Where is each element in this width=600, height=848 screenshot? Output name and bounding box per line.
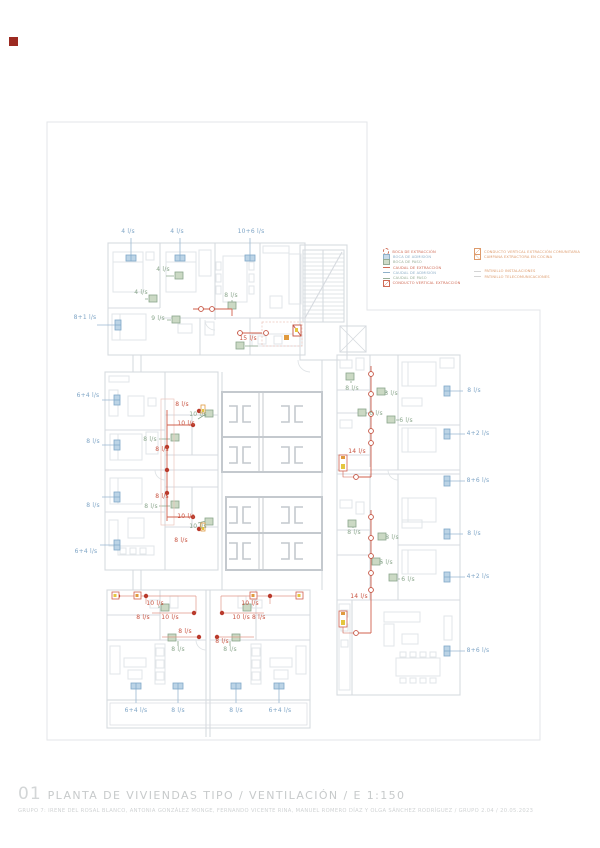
sheet-title: PLANTA DE VIVIENDAS TIPO / VENTILACIÓN /… (48, 789, 406, 802)
rect-green-icon (383, 259, 390, 265)
shaft-boxes (222, 392, 322, 570)
legend-item-label: CONDUCTO VERTICAL EXTRACCIÓN COMUNITARIA (484, 250, 580, 254)
line-red-icon (383, 267, 390, 268)
sheet-number: 01 (18, 784, 42, 804)
legend-item-label: PATINILLO TELECOMUNICACIONES (484, 275, 549, 279)
legend-item: CAMPANA EXTRACTORA EN COCINA (474, 254, 580, 259)
line-green-icon (383, 278, 390, 279)
legend-column-right: CONDUCTO VERTICAL EXTRACCIÓN COMUNITARIA… (474, 249, 580, 286)
legend-item-label: PATINILLO INSTALACIONES (484, 269, 535, 273)
legend-item-label: BOCA DE PASO (393, 260, 422, 264)
title-block: 01PLANTA DE VIVIENDAS TIPO / VENTILACIÓN… (18, 784, 582, 814)
legend-column-left: BOCA DE EXTRACCIÓNBOCA DE ADMISIÓNBOCA D… (383, 249, 460, 286)
dash-gray-icon (474, 271, 481, 272)
legend-item: CONDUCTO VERTICAL EXTRACCIÓN (383, 281, 460, 286)
legend-item-label: BOCA DE EXTRACCIÓN (392, 250, 435, 254)
dash-gray-icon (474, 276, 481, 277)
floor-plan-drawing (0, 0, 600, 848)
legend-item-label: CAUDAL DE ADMISIÓN (393, 271, 436, 275)
legend-item-label: CAUDAL DE EXTRACCIÓN (393, 266, 441, 270)
legend-item-label: BOCA DE ADMISIÓN (393, 255, 431, 259)
legend-item-label: CAMPANA EXTRACTORA EN COCINA (484, 255, 552, 259)
legend-item-label: CAUDAL DE PASO (393, 276, 427, 280)
sheet-credits: GRUPO 7: IRENE DEL ROSAL BLANCO, ANTONIA… (18, 808, 582, 814)
slash-red-icon (383, 280, 390, 287)
legend: BOCA DE EXTRACCIÓNBOCA DE ADMISIÓNBOCA D… (383, 249, 580, 286)
legend-item-label: CONDUCTO VERTICAL EXTRACCIÓN (393, 281, 461, 285)
walls (105, 243, 460, 737)
line-blue-icon (383, 272, 390, 273)
legend-item: PATINILLO TELECOMUNICACIONES (474, 274, 580, 279)
drawing-sheet: 4 l/s4 l/s10+6 l/s8+1 l/s6+4 l/s8 l/s8 l… (0, 0, 600, 848)
diag-orange-icon (474, 254, 481, 261)
